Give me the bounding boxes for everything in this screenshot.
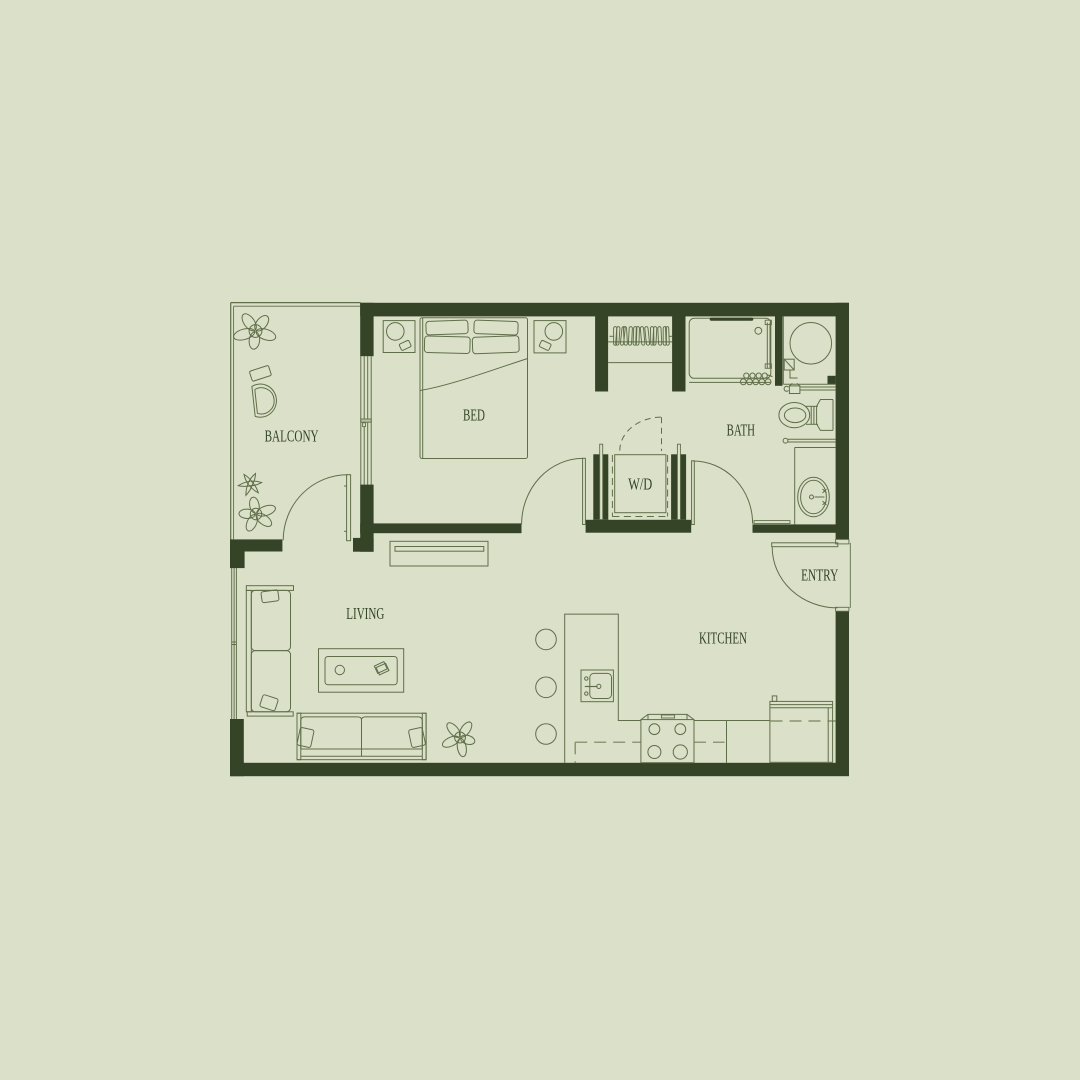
- svg-text:KITCHEN: KITCHEN: [699, 629, 747, 648]
- svg-text:ENTRY: ENTRY: [801, 566, 838, 585]
- svg-text:BATH: BATH: [727, 421, 755, 440]
- svg-text:W/D: W/D: [628, 475, 652, 494]
- svg-text:LIVING: LIVING: [346, 604, 384, 623]
- svg-text:BALCONY: BALCONY: [265, 427, 319, 446]
- svg-text:BED: BED: [463, 406, 485, 425]
